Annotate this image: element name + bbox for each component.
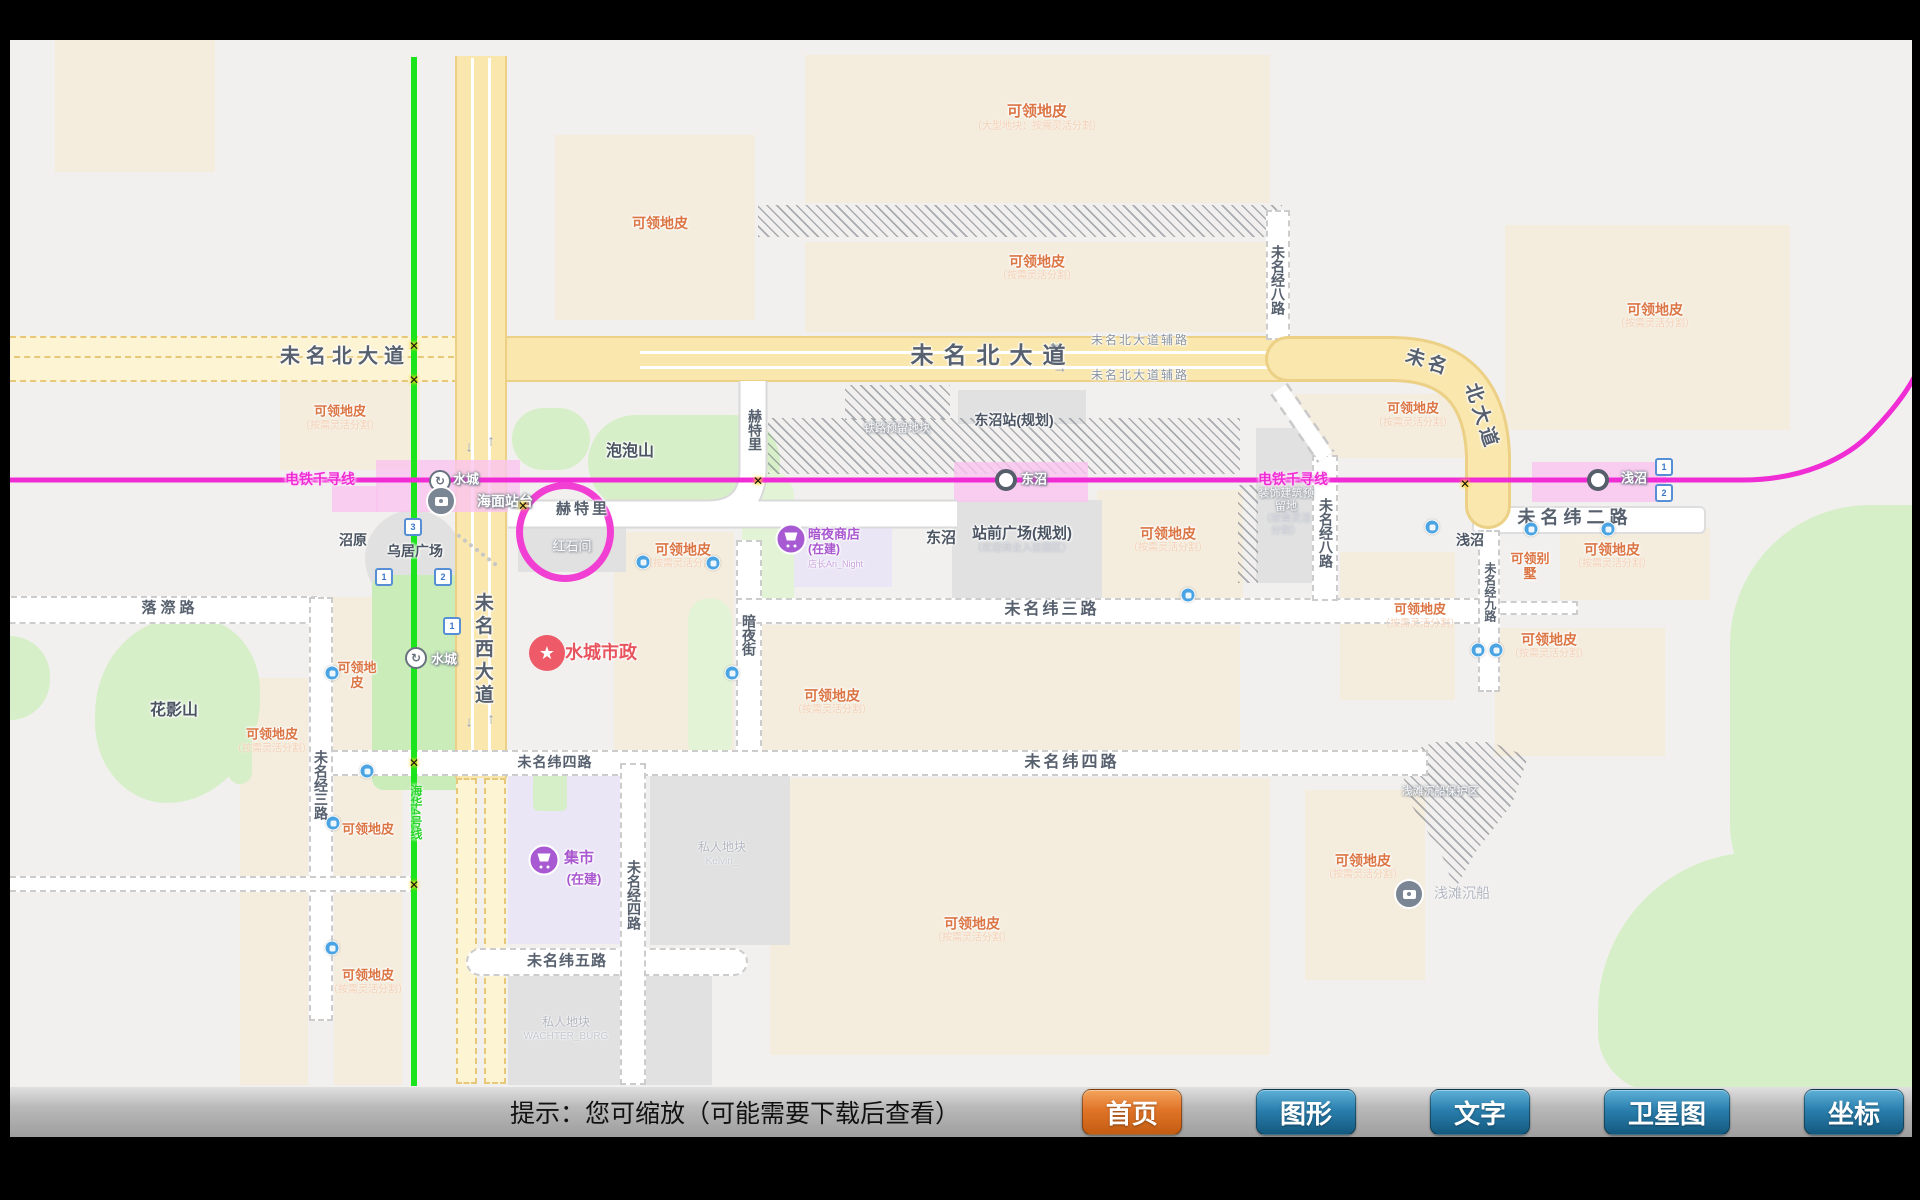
place-label: 浅沼 [1456,532,1484,548]
transit-loop-icon: ↻ [405,647,427,669]
stop-marker-icon [325,941,340,956]
numbered-marker-icon: 1 [1655,458,1673,476]
station-label: 浅沼 [1621,472,1647,487]
lane-arrow-icon: ← [1048,335,1063,352]
numbered-marker-icon: 1 [443,617,461,635]
road-label: 未名纬三路 [1004,601,1099,619]
place-label: 站前广场(规划)（欢迎商业入驻园区） [972,525,1072,555]
road-label: 未名纬四路 [518,754,593,770]
shop-cart-icon [776,524,807,555]
claim-parcel-label: 可领地皮（按需灵活分割） [932,916,1012,945]
metro-line-label: 电铁千寻线 [285,471,355,487]
rail-crossing-icon: ✕ [1460,477,1470,491]
poi-label: 店长An_Night [808,559,863,569]
stop-marker-icon [1425,520,1440,535]
private-parcel-label: 私人地块WACHTER_BURG [524,1016,609,1042]
place-label: 乌居广场 [387,543,443,559]
rail-crossing-icon: ✕ [409,373,419,387]
rail-crossing-icon: ✕ [409,756,419,770]
place-label: 泡泡山 [606,443,654,461]
rail-crossing-icon: ✕ [518,499,528,513]
station-label: 水城 [453,473,479,488]
stop-marker-icon [360,764,375,779]
poi-label: 暗夜商店 [808,528,860,543]
claim-parcel-label: 可领地皮 [632,215,688,231]
toolbar-button-coordinates[interactable]: 坐标 [1804,1089,1904,1135]
claim-parcel-label: 可领地皮（按需灵活分割） [1615,302,1695,331]
numbered-marker-icon: 3 [404,518,422,536]
road-label: 未名纬四路 [1024,754,1119,772]
stop-marker-icon [1181,588,1196,603]
rail-crossing-icon: ✕ [409,339,419,353]
road-label: 未名经三路 [313,750,329,820]
toolbar-button-text[interactable]: 文字 [1430,1089,1530,1135]
road-label: 未名经八路 [1318,498,1334,568]
road-label: 赫特里 [556,500,610,517]
road-label: 未名北大道辅路 [1091,369,1189,383]
area-label: 铁路预留地块 [864,423,930,436]
area-label: 浅滩沉船保护区 [1402,786,1479,799]
claim-parcel-label: 可领地皮 [342,823,394,838]
toolbar-button-home[interactable]: 首页 [1082,1089,1182,1135]
place-label: 东沼 [926,529,956,546]
claim-parcel-label: 可领地皮（按需灵活分割） [1373,401,1453,428]
stop-marker-icon [725,666,740,681]
private-parcel-label: 私人地块Kelvin_ [698,841,746,867]
road-label: 未名北大道 [280,346,410,369]
poi-label: 水城市政 [565,643,637,664]
road-label: 未名西大道 [471,593,493,708]
stop-marker-icon [1601,522,1616,537]
claim-parcel-label: 可领地皮（按需灵活分割） [300,404,380,431]
lane-arrow-icon: ↑ [487,433,495,450]
private-parcel-label: 浅滩沉船 [1434,885,1490,901]
station-label: 水城 [431,653,457,668]
claim-parcel-label: 可领地皮（按需灵活分割） [1128,526,1208,555]
claim-parcel-label: 可领地皮（按需灵活分割） [997,254,1077,283]
zoom-hint-text: 提示：您可缩放（可能需要下载后查看） [510,1087,960,1137]
numbered-marker-icon: 2 [1655,484,1673,502]
road-label: 未名经四路 [626,860,642,930]
poi-label: (在建) [567,873,602,888]
stop-marker-icon [636,555,651,570]
road-label: 未名纬五路 [527,952,607,969]
camera-icon [426,486,456,516]
claim-parcel-label: 可领别墅 [1509,552,1551,582]
road-label: 暗夜街 [741,614,757,656]
road-label: 未名经八路 [1270,245,1286,315]
claim-parcel-label: 可领地皮（按需灵活分割） [1323,853,1403,882]
municipal-star-icon: ★ [529,635,565,671]
area-label: 装饰建筑预留地（按需灵活分割） [1258,487,1314,536]
road-label: 未名经九路 [1482,562,1496,622]
toolbar-button-satellite[interactable]: 卫星图 [1604,1089,1730,1135]
area-label: 红石间 [552,540,591,555]
road-label: 赫特里 [747,409,763,451]
stop-marker-icon [325,666,340,681]
place-label: 沼原 [339,532,367,548]
letterbox-top [0,0,1920,40]
lane-arrow-icon: ↓ [465,439,473,456]
claim-parcel-label: 可领地皮（按需灵活分割） [232,727,312,754]
stop-marker-icon [1489,643,1504,658]
bottom-toolbar: 提示：您可缩放（可能需要下载后查看） 首页图形文字卫星图坐标 [10,1087,1912,1137]
claim-parcel-label: 可领地皮（按需灵活分割） [1572,542,1652,571]
numbered-marker-icon: 2 [434,568,452,586]
toolbar-button-graphics[interactable]: 图形 [1256,1089,1356,1135]
stop-marker-icon [1471,643,1486,658]
claim-parcel-label: 可领地皮（按需灵活分割） [1380,602,1460,629]
place-label: 花影山 [150,702,198,720]
app-window: 未名北大道未名北大道未名北大道辅路未名北大道辅路未名北大道未名西大道未名纬二路未… [0,0,1920,1200]
road-label: 落漈路 [141,599,198,616]
toolbar-buttons: 首页图形文字卫星图坐标 [1082,1089,1904,1135]
letterbox-right [1912,0,1920,1200]
camera-icon [1394,879,1424,909]
stop-marker-icon [1524,522,1539,537]
letterbox-left [0,0,10,1200]
metro-line-label: 电铁千寻线 [1258,471,1328,487]
rail-crossing-icon: ✕ [753,474,763,488]
stop-marker-icon [706,556,721,571]
lane-arrow-icon: → [1053,360,1068,377]
poi-label: 集市 [564,849,594,866]
stop-marker-icon [326,816,341,831]
station-dot-icon [995,469,1017,491]
station-label: 东沼 [1021,473,1047,488]
transit-lines [0,0,1920,1200]
place-label: 东沼站(规划) [974,412,1053,428]
claim-parcel-label: 可领地皮（按需灵活分割） [792,688,872,717]
poi-label: (在建) [808,543,840,557]
claim-parcel-label: 可领地皮（按需灵活分割） [1509,632,1589,661]
shop-cart-icon [529,845,560,876]
claim-parcel-label: 可领地皮（按需灵活分割） [328,968,408,995]
metro-line-label: 海华4号线 [408,785,422,840]
letterbox-bottom [0,1137,1920,1200]
lane-arrow-icon: ↓ [465,714,473,731]
road-label: 未名北大道辅路 [1091,334,1189,348]
rail-crossing-icon: ✕ [409,878,419,892]
numbered-marker-icon: 1 [375,568,393,586]
station-dot-icon [1587,469,1609,491]
claim-parcel-label: 可领地皮（大型地块：按需灵活分割） [972,103,1102,133]
lane-arrow-icon: ↑ [487,711,495,728]
claim-parcel-label: 可领地皮 [334,661,380,691]
